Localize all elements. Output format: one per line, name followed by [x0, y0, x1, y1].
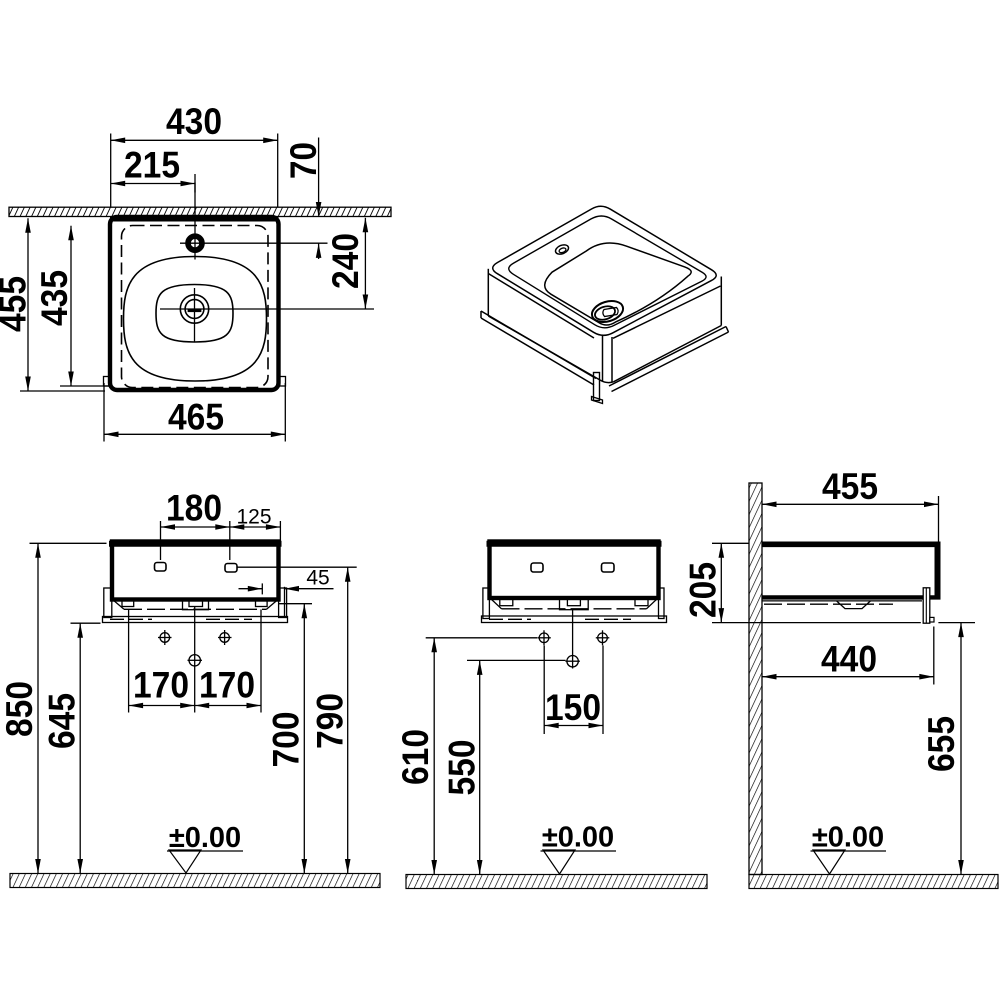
svg-text:180: 180	[166, 488, 222, 529]
svg-text:430: 430	[166, 101, 222, 142]
svg-text:610: 610	[395, 729, 436, 785]
svg-text:150: 150	[545, 687, 601, 728]
svg-text:465: 465	[168, 397, 224, 438]
svg-text:70: 70	[283, 142, 324, 179]
svg-text:±0.00: ±0.00	[169, 822, 241, 854]
svg-text:240: 240	[325, 233, 366, 289]
svg-text:455: 455	[0, 276, 34, 332]
svg-text:700: 700	[266, 712, 307, 768]
svg-text:±0.00: ±0.00	[812, 822, 884, 854]
svg-text:455: 455	[822, 466, 878, 507]
svg-text:±0.00: ±0.00	[542, 822, 614, 854]
svg-text:435: 435	[34, 270, 75, 326]
svg-text:205: 205	[683, 562, 724, 618]
svg-text:550: 550	[442, 740, 483, 796]
svg-text:170: 170	[199, 665, 255, 706]
svg-text:790: 790	[310, 693, 351, 749]
svg-text:655: 655	[921, 716, 962, 772]
svg-text:645: 645	[42, 693, 83, 749]
svg-text:170: 170	[133, 665, 189, 706]
svg-text:850: 850	[0, 681, 40, 737]
svg-text:440: 440	[821, 639, 877, 680]
svg-text:45: 45	[306, 567, 329, 590]
svg-text:215: 215	[124, 145, 180, 186]
svg-text:125: 125	[236, 506, 271, 529]
